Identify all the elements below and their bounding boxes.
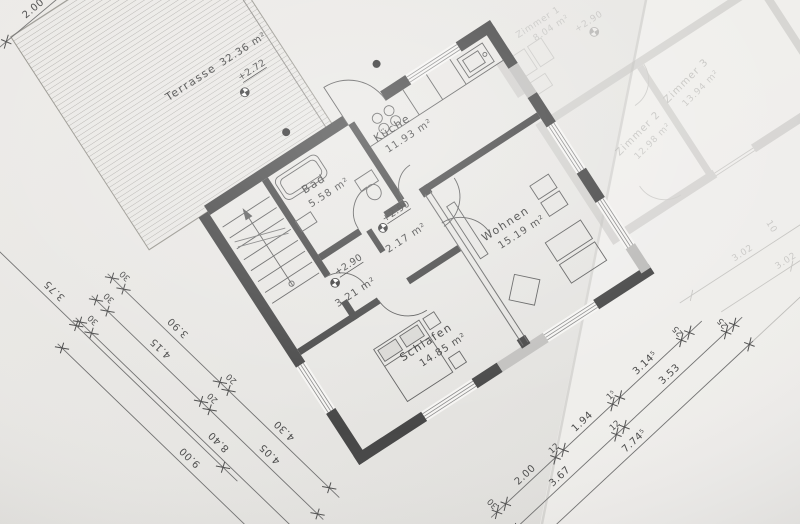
floor-plan-svg: Zimmer 3 13.94 m² Zimmer 2 12.98 m² Zimm…	[0, 0, 800, 524]
floor-plan-photo: Zimmer 3 13.94 m² Zimmer 2 12.98 m² Zimm…	[0, 0, 800, 524]
